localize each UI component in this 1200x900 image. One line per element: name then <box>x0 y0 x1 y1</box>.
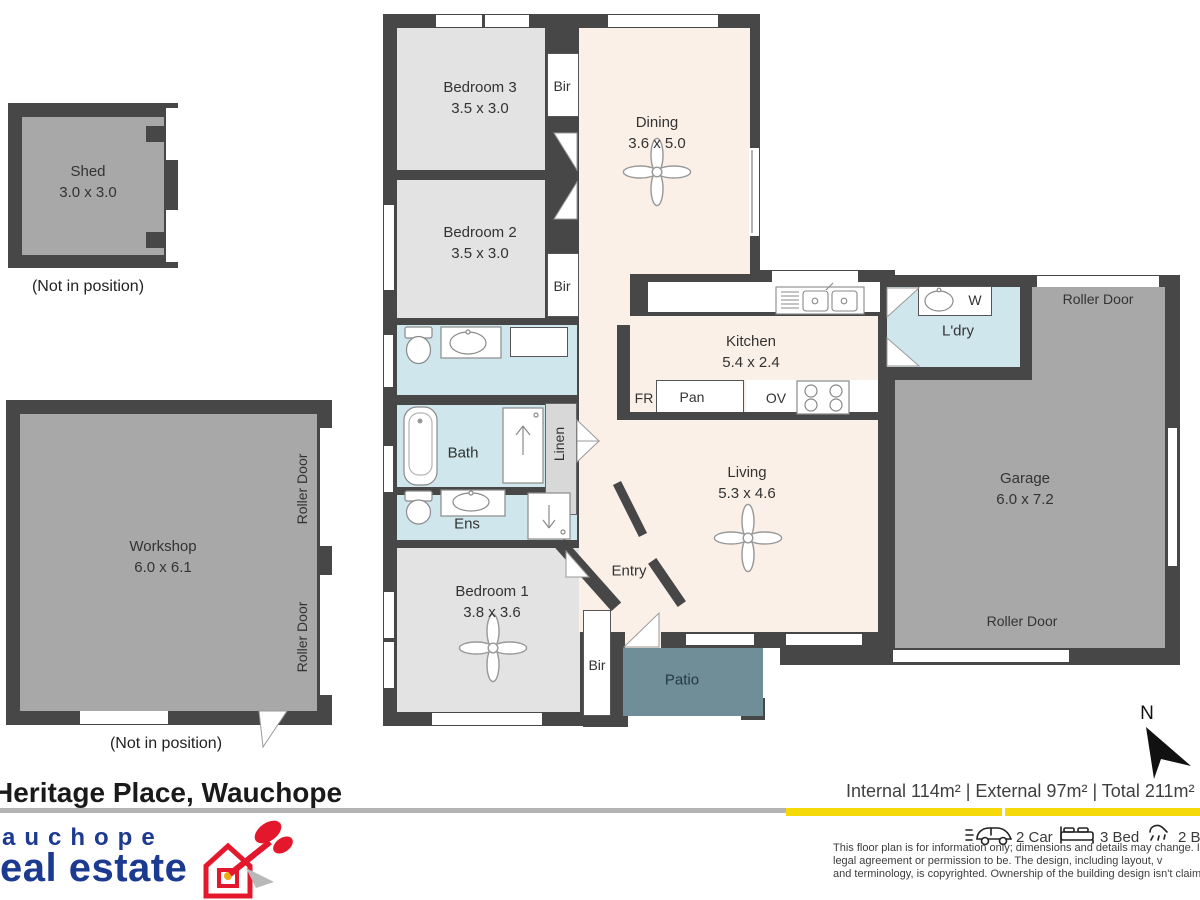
wall <box>146 126 164 142</box>
window <box>772 271 858 282</box>
oven-label: OV <box>766 390 786 406</box>
room-label-bedroom3: Bedroom 33.5 x 3.0 <box>443 77 516 119</box>
not-in-position-note: (Not in position) <box>110 735 222 753</box>
roller-door-opening <box>320 575 332 695</box>
window <box>1168 428 1177 566</box>
window <box>786 634 862 645</box>
window <box>80 711 168 724</box>
roller-door-label: Roller Door <box>987 613 1058 629</box>
roller-door-opening <box>1037 276 1159 287</box>
kitchen-bench <box>648 282 880 316</box>
disclaimer-line: and terminology, is copyrighted. Ownersh… <box>833 868 1200 880</box>
sliding-door <box>749 148 759 236</box>
door-opening <box>166 108 178 160</box>
room-label-bedroom1: Bedroom 13.8 x 3.6 <box>455 581 528 623</box>
window <box>432 713 542 725</box>
room-garage <box>895 380 1165 648</box>
window <box>686 634 754 645</box>
bir-label: Bir <box>553 78 570 94</box>
fridge-label: FR <box>635 390 654 406</box>
room-label-shed: Shed3.0 x 3.0 <box>59 161 117 203</box>
floor-plan-page: Shed3.0 x 3.0 (Not in position) Workshop… <box>0 0 1200 900</box>
north-arrow-icon <box>1146 727 1191 779</box>
areas-summary: Internal 114m² | External 97m² | Total 2… <box>846 781 1195 802</box>
window <box>384 335 393 387</box>
disclaimer-line: legal agreement or permission to be. The… <box>833 855 1162 867</box>
bir-label: Bir <box>588 657 605 673</box>
room-label-living: Living5.3 x 4.6 <box>718 462 776 504</box>
wall <box>617 412 748 420</box>
room-label-workshop: Workshop6.0 x 6.1 <box>129 536 196 578</box>
roller-door-label: Roller Door <box>1063 291 1134 307</box>
roller-door-label: Roller Door <box>294 454 310 525</box>
window <box>485 15 529 27</box>
room-label-bath: Bath <box>448 445 479 462</box>
window <box>436 15 482 27</box>
accent-bar <box>786 808 1200 816</box>
room-label-ens: Ens <box>454 516 480 533</box>
wall <box>617 325 630 420</box>
wall <box>146 232 164 248</box>
room-label-garage: Garage6.0 x 7.2 <box>996 468 1054 510</box>
disclaimer-line: This floor plan is for information only;… <box>833 842 1200 854</box>
room-label-entry: Entry <box>611 563 646 580</box>
bir-label: Bir <box>553 278 570 294</box>
page-title: Heritage Place, Wauchope <box>0 777 342 809</box>
window <box>384 205 394 290</box>
room-label-linen: Linen <box>551 427 567 461</box>
pantry-label: Pan <box>680 389 705 405</box>
wall <box>746 412 878 420</box>
room-label-patio: Patio <box>665 672 699 689</box>
not-in-position-note: (Not in position) <box>32 278 144 296</box>
accent-bar-gap <box>1002 808 1005 816</box>
window <box>384 642 394 688</box>
washer-label: W <box>968 292 981 308</box>
room-label-laundry: L'dry <box>942 323 974 340</box>
door-opening <box>166 210 178 262</box>
window <box>384 592 394 638</box>
window <box>384 446 393 492</box>
compass-n-label: N <box>1140 703 1154 725</box>
cupboard <box>510 327 568 357</box>
roller-door-label: Roller Door <box>294 602 310 673</box>
room-bedroom1 <box>397 548 580 712</box>
room-label-dining: Dining3.6 x 5.0 <box>628 112 686 154</box>
window <box>608 15 718 27</box>
agency-logo-dart-icon <box>188 818 303 900</box>
room-label-bedroom2: Bedroom 23.5 x 3.0 <box>443 222 516 264</box>
divider <box>0 808 786 813</box>
entry-door-opening <box>625 632 661 648</box>
room-label-kitchen: Kitchen5.4 x 2.4 <box>722 331 780 373</box>
agency-logo-line2: eal estate <box>0 846 187 891</box>
roller-door-opening <box>893 650 1069 662</box>
roller-door-opening <box>320 428 332 546</box>
